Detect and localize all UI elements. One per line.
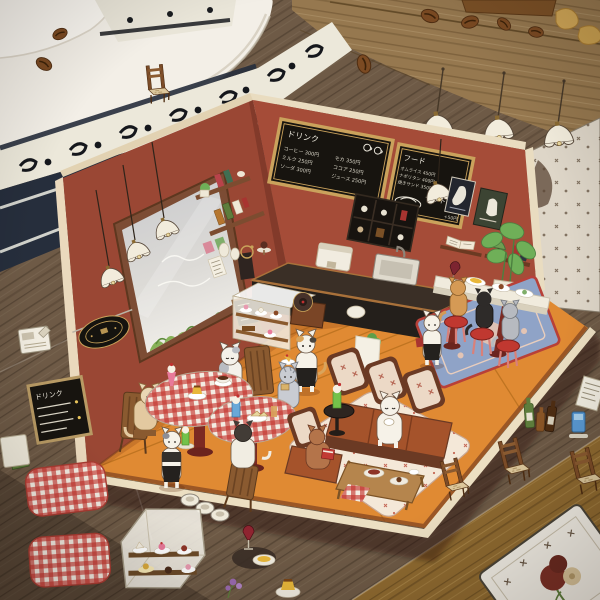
vignette <box>0 0 600 600</box>
photo-cat-cafe-diorama: ドリンク コーヒー 300円 ミルク 250円 ソーダ 300円 モカ 350円… <box>0 0 600 600</box>
